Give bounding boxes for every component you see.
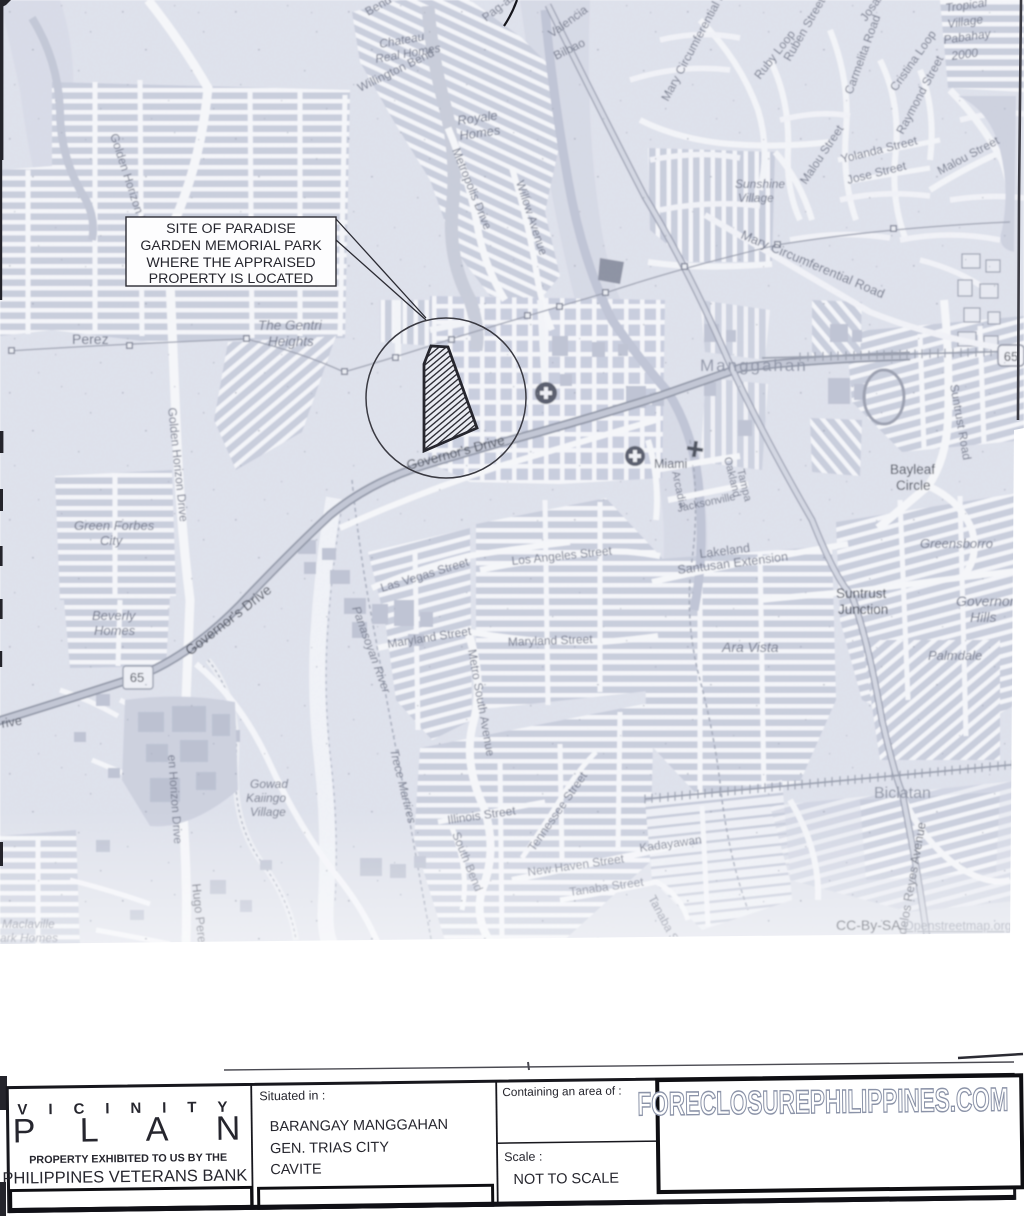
svg-text:N: N bbox=[216, 1110, 241, 1148]
svg-text:L: L bbox=[80, 1111, 99, 1149]
svg-text:P: P bbox=[13, 1112, 36, 1150]
svg-text:CAVITE: CAVITE bbox=[270, 1161, 322, 1178]
svg-text:Scale :: Scale : bbox=[504, 1150, 542, 1164]
svg-text:Situated in :: Situated in : bbox=[259, 1088, 325, 1103]
svg-text:A: A bbox=[146, 1110, 169, 1148]
svg-text:GEN. TRIAS CITY: GEN. TRIAS CITY bbox=[270, 1140, 390, 1158]
svg-text:GARDEN MEMORIAL PARK: GARDEN MEMORIAL PARK bbox=[140, 238, 322, 254]
svg-text:PHILIPPINES VETERANS BANK: PHILIPPINES VETERANS BANK bbox=[2, 1166, 247, 1187]
svg-text:BARANGAY MANGGAHAN: BARANGAY MANGGAHAN bbox=[270, 1117, 449, 1135]
svg-text:WHERE THE APPRAISED: WHERE THE APPRAISED bbox=[146, 255, 315, 271]
svg-text:Containing an area of :: Containing an area of : bbox=[502, 1084, 622, 1100]
svg-text:PROPERTY IS LOCATED: PROPERTY IS LOCATED bbox=[149, 271, 314, 287]
svg-text:NOT TO SCALE: NOT TO SCALE bbox=[513, 1171, 619, 1188]
svg-text:SITE OF PARADISE: SITE OF PARADISE bbox=[166, 221, 296, 237]
svg-text:FORECLOSUREPHILIPPINES.COM: FORECLOSUREPHILIPPINES.COM bbox=[637, 1080, 1008, 1122]
